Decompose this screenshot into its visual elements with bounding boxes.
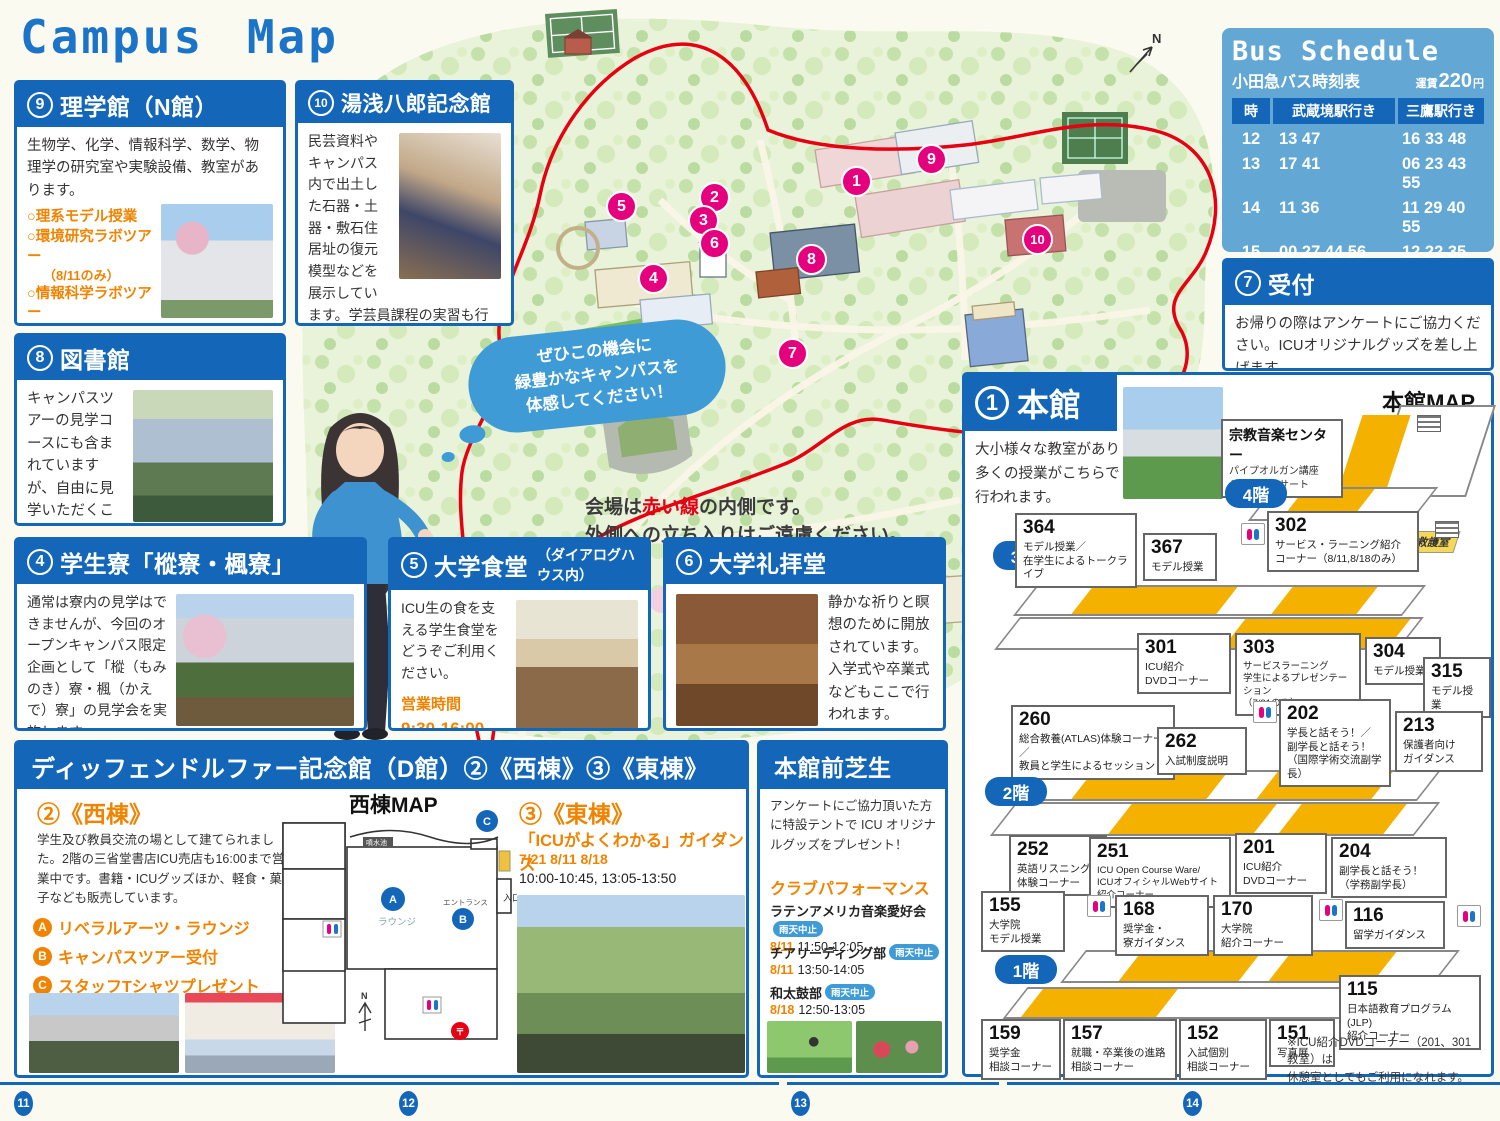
page-title: Campus Map xyxy=(20,10,339,64)
west-item-a: A リベラルアーツ・ラウンジ xyxy=(33,915,260,939)
map-marker-10: 10 xyxy=(1022,224,1053,255)
science-description: 生物学、化学、情報科学、数学、物理学の研究室や実験設備、教室があります。 xyxy=(27,138,259,199)
west-item-c-key: C xyxy=(33,976,52,995)
infobox-dormitory-body: 通常は寮内の見学はできませんが、今回のオープンキャンパス限定企画として「樅（もみ… xyxy=(17,584,364,728)
east-wing-times: 10:00-10:45, 13:05-13:50 xyxy=(519,870,676,886)
map-marker-6: 6 xyxy=(699,228,730,259)
photo-lawn-club xyxy=(856,1021,942,1073)
infobox-cafeteria-subtitle: （ダイアログハウス内） xyxy=(537,545,638,585)
room-callout-152: 152入試個別 相談コーナー xyxy=(1179,1019,1267,1080)
chapel-description: 静かな祈りと瞑想のために開放されています。入学式や卒業式などもここで行われます。 xyxy=(828,595,930,723)
map-marker-4: 4 xyxy=(638,263,669,294)
photo-science-hall xyxy=(161,204,273,318)
bus-timetable-header: 時 武蔵境駅行き 三鷹駅行き xyxy=(1232,98,1484,124)
footer-rule xyxy=(787,1082,999,1085)
photo-dormitory xyxy=(176,594,354,726)
number-ring-7: 7 xyxy=(1235,270,1261,296)
infobox-cafeteria: 5 大学食堂 （ダイアログハウス内） ICU生の食を支える学生食堂をどうぞご利用… xyxy=(388,537,651,731)
room-callout-260: 260総合教養(ATLAS)体験コーナー／ 教員と学生によるセッション xyxy=(1011,705,1175,780)
honkan-description: 大小様々な教室があり多くの授業がこちらで行われます。 xyxy=(975,439,1127,511)
photo-yuasa-museum xyxy=(399,133,501,279)
infobox-reception-header: 7 受付 xyxy=(1225,261,1491,305)
diffendorfer-section: ディッフェンドルファー記念館（D館）②《西棟》③《東棟》 ②《西棟》 学生及び教… xyxy=(14,740,749,1078)
page-number-14: 14 xyxy=(1183,1091,1202,1116)
bus-row: 1317 4106 23 43 55 xyxy=(1232,155,1484,193)
bus-fare: 運賃220円 xyxy=(1416,70,1484,93)
restroom-icon xyxy=(1241,523,1265,545)
science-item-0: ○理系モデル授業 xyxy=(27,208,161,228)
number-ring-6: 6 xyxy=(676,549,702,575)
west-wing-heading: ②《西棟》 xyxy=(37,795,152,829)
floor-pill-2f: 2階 xyxy=(985,777,1047,806)
room-callout-302: 302サービス・ラーニング紹介 コーナー（8/11,8/18のみ） xyxy=(1267,511,1419,572)
number-ring-5: 5 xyxy=(401,552,427,578)
room-callout-367: 367モデル授業 xyxy=(1143,533,1217,581)
plan-post-office-mark: 〒 xyxy=(456,1027,465,1037)
note-post: の内側です。 xyxy=(699,497,811,518)
photo-chapel xyxy=(676,594,818,726)
infobox-library-body: キャンパスツアーの見学コースにも含まれていますが、自由に見学いただくことも可能で… xyxy=(17,380,283,523)
photo-dkan-exterior xyxy=(29,993,179,1073)
room-callout-204: 204副学長と話そう！ （学務副学長） xyxy=(1331,837,1447,898)
campus-map-page: N 1 2 3 4 5 6 7 8 9 10 ぜひこの機会に 緑豊かなキャンパス… xyxy=(0,0,1500,1121)
reception-description: お帰りの際はアンケートにご協力ください。ICUオリジナルグッズを差し上げます。 xyxy=(1225,305,1491,368)
infobox-dormitory-title: 学生寮「樅寮・楓寮」 xyxy=(60,545,295,579)
cafeteria-description: ICU生の食を支える学生食堂をどうぞご利用ください。 xyxy=(401,600,499,681)
rain-cancel-badge: 雨天中止 xyxy=(773,921,823,937)
infobox-cafeteria-title: 大学食堂 xyxy=(434,548,528,582)
page-number-12: 12 xyxy=(399,1091,418,1116)
honkan-header: 1 本館 xyxy=(965,375,1117,431)
room-callout-201: 201ICU紹介 DVDコーナー xyxy=(1235,833,1327,894)
room-callout-202: 202学長と話そう！／ 副学長と話そう！ （国際学術交流副学長） xyxy=(1279,699,1391,787)
map-marker-5: 5 xyxy=(606,191,637,222)
west-wing-floorplan: 噴水池 A ラウンジ エントランス B C 入口 〒 N xyxy=(275,809,517,1045)
infobox-yuasa-body: 民芸資料やキャンパス内で出土した石器・土器・敷石住居址の復元模型などを展示してい… xyxy=(298,123,511,323)
west-item-b-label: キャンパスツアー受付 xyxy=(58,944,218,968)
infobox-chapel-title: 大学礼拝堂 xyxy=(709,545,827,579)
west-item-b-key: B xyxy=(33,947,52,966)
room-callout-213: 213保護者向け ガイダンス xyxy=(1395,711,1483,772)
honkan-title: 本館 xyxy=(1017,380,1081,426)
west-wing-items: A リベラルアーツ・ラウンジ B キャンパスツアー受付 C スタッフTシャツプレ… xyxy=(33,915,260,1002)
room-callout-364: 364モデル授業／ 在学生によるトークライブ xyxy=(1015,513,1137,588)
infobox-reception: 7 受付 お帰りの際はアンケートにご協力ください。ICUオリジナルグッズを差し上… xyxy=(1222,258,1494,371)
lawn-section: 本館前芝生 アンケートにご協力頂いた方に特設テントで ICU オリジナルグッズを… xyxy=(757,740,948,1078)
honkan-footnote: ※ICU紹介DVDコーナー（201、301教室）は 休憩室としてもご利用になれま… xyxy=(1287,1035,1472,1087)
infobox-science-title: 理学館（N館） xyxy=(60,88,218,122)
plan-a-marker: A xyxy=(389,894,397,906)
plan-entrance-label: エントランス xyxy=(443,898,488,907)
lawn-description: アンケートにご協力頂いた方に特設テントで ICU オリジナルグッズをプレゼント！ xyxy=(770,797,938,855)
number-ring-8: 8 xyxy=(27,345,53,371)
plan-c-marker: C xyxy=(483,816,491,828)
map-marker-1: 1 xyxy=(841,166,872,197)
footer-rule xyxy=(0,1082,779,1085)
note-pre: 会場は xyxy=(585,497,642,518)
room-callout-315: 315モデル授業 xyxy=(1423,657,1491,718)
plan-b-marker: B xyxy=(459,914,467,926)
event-cheerleading: チアリーディング部雨天中止 8/1113:50-14:05 xyxy=(770,943,942,977)
number-ring-9: 9 xyxy=(27,92,53,118)
plan-pond-label: 噴水池 xyxy=(366,838,387,847)
infobox-yuasa-title: 湯浅八郎記念館 xyxy=(341,88,492,118)
west-item-a-key: A xyxy=(33,918,52,937)
plan-entry-label: 入口 xyxy=(503,893,517,903)
infobox-library-header: 8 図書館 xyxy=(17,336,283,380)
rain-cancel-badge: 雨天中止 xyxy=(825,984,875,1000)
diffendorfer-title: ディッフェンドルファー記念館（D館）②《西棟》③《東棟》 xyxy=(31,749,709,784)
infobox-cafeteria-header: 5 大学食堂 （ダイアログハウス内） xyxy=(391,540,648,590)
room-callout-301: 301ICU紹介 DVDコーナー xyxy=(1137,633,1231,694)
dormitory-description: 通常は寮内の見学はできませんが、今回のオープンキャンパス限定企画として「樅（もみ… xyxy=(27,594,167,728)
bus-schedule-subtitle: 小田急バス時刻表 xyxy=(1232,68,1360,92)
science-program-list: ○理系モデル授業 ○環境研究ラボツアー （8/11のみ） ○情報科学ラボツアー … xyxy=(27,208,161,323)
science-item-1-note: （8/11のみ） xyxy=(27,267,161,285)
floor-pill-4f: 4階 xyxy=(1225,479,1287,508)
floor3-slab-upper xyxy=(1013,585,1426,616)
restroom-icon xyxy=(1253,701,1277,723)
photo-cafeteria xyxy=(516,600,638,728)
photo-honkan xyxy=(1123,387,1223,499)
bus-col-hour: 時 xyxy=(1232,98,1270,124)
page-number-13: 13 xyxy=(791,1091,810,1116)
room-callout-155: 155大学院 モデル授業 xyxy=(981,891,1065,952)
number-ring-4: 4 xyxy=(27,549,53,575)
infobox-science-header: 9 理学館（N館） xyxy=(17,83,283,127)
plan-lounge-label: ラウンジ xyxy=(378,917,416,928)
west-item-a-label: リベラルアーツ・ラウンジ xyxy=(58,915,250,939)
bus-col-mitaka: 三鷹駅行き xyxy=(1398,98,1484,124)
room-callout-170: 170大学院 紹介コーナー xyxy=(1213,895,1313,956)
rain-cancel-badge: 雨天中止 xyxy=(889,944,939,960)
club-performance-heading: クラブパフォーマンス xyxy=(770,875,930,899)
lawn-header: 本館前芝生 xyxy=(760,743,945,789)
lawn-title: 本館前芝生 xyxy=(774,749,892,783)
number-ring-10: 10 xyxy=(308,90,334,116)
bus-schedule-subrow: 小田急バス時刻表 運賃220円 xyxy=(1232,68,1484,93)
infobox-yuasa-museum: 10 湯浅八郎記念館 民芸資料やキャンパス内で出土した石器・土器・敷石住居址の復… xyxy=(295,80,514,326)
map-marker-9: 9 xyxy=(916,144,947,175)
restroom-icon xyxy=(1319,899,1343,921)
number-ring-1: 1 xyxy=(975,386,1009,420)
room-callout-159: 159奨学金 相談コーナー xyxy=(981,1019,1061,1080)
map-marker-8: 8 xyxy=(796,244,827,275)
infobox-yuasa-header: 10 湯浅八郎記念館 xyxy=(298,83,511,123)
photo-east-wing xyxy=(517,895,745,1073)
music-center-title: 宗教音楽センター xyxy=(1229,425,1335,465)
floor-pill-1f: 1階 xyxy=(995,955,1057,984)
bus-row: 1213 4716 33 48 xyxy=(1232,130,1484,149)
infobox-science-body: 生物学、化学、情報科学、数学、物理学の研究室や実験設備、教室があります。 ○理系… xyxy=(17,127,283,323)
bus-row: 1411 3611 29 40 55 xyxy=(1232,199,1484,237)
event-taiko: 和太鼓部雨天中止 8/1812:50-13:05 xyxy=(770,983,942,1017)
infobox-library: 8 図書館 キャンパスツアーの見学コースにも含まれていますが、自由に見学いただく… xyxy=(14,333,286,526)
page-number-11: 11 xyxy=(14,1091,33,1116)
honkan-panel: 1 本館 大小様々な教室があり多くの授業がこちらで行われます。 本館MAP 宗教… xyxy=(962,372,1494,1077)
plan-north-compass: N xyxy=(359,991,371,1031)
infobox-dormitory-header: 4 学生寮「樅寮・楓寮」 xyxy=(17,540,364,584)
restroom-icon xyxy=(1087,895,1111,917)
stairs-icon xyxy=(1435,521,1459,538)
note-red-line: 赤い線 xyxy=(642,497,699,518)
east-wing-heading: ③《東棟》 xyxy=(519,795,634,829)
infobox-dormitory: 4 学生寮「樅寮・楓寮」 通常は寮内の見学はできませんが、今回のオープンキャンパ… xyxy=(14,537,367,731)
photo-library xyxy=(133,390,273,522)
east-wing-dates: 7/21 8/11 8/18 xyxy=(519,851,608,867)
infobox-science-hall: 9 理学館（N館） 生物学、化学、情報科学、数学、物理学の研究室や実験設備、教室… xyxy=(14,80,286,326)
west-item-b: B キャンパスツアー受付 xyxy=(33,944,260,968)
infobox-reception-title: 受付 xyxy=(1268,266,1315,300)
library-description: キャンパスツアーの見学コースにも含まれていますが、自由に見学いただくことも可能で… xyxy=(27,391,114,523)
map-marker-7: 7 xyxy=(777,338,808,369)
photo-lawn-performance xyxy=(767,1021,852,1073)
bus-col-musashisakai: 武蔵境駅行き xyxy=(1273,98,1395,124)
infobox-chapel-body: 静かな祈りと瞑想のために開放されています。入学式や卒業式などもここで行われます。 xyxy=(666,584,943,728)
science-item-2: ○情報科学ラボツアー xyxy=(27,285,161,323)
compass-label: N xyxy=(1152,31,1161,46)
stairs-icon xyxy=(1417,415,1441,432)
science-item-1: ○環境研究ラボツアー xyxy=(27,228,161,267)
floor2-slab-lower xyxy=(990,802,1441,836)
room-callout-168: 168奨学金・ 寮ガイダンス xyxy=(1115,895,1209,956)
compass-north: N xyxy=(1126,30,1170,81)
infobox-cafeteria-body: ICU生の食を支える学生食堂をどうぞご利用ください。 営業時間 9:30-16:… xyxy=(391,590,648,728)
restroom-icon xyxy=(1457,905,1481,927)
room-callout-157: 157就職・卒業後の進路 相談コーナー xyxy=(1063,1019,1177,1080)
bus-schedule-panel: Bus Schedule 小田急バス時刻表 運賃220円 時 武蔵境駅行き 三鷹… xyxy=(1222,28,1494,252)
room-callout-262: 262入試制度説明 xyxy=(1157,727,1247,775)
infobox-chapel: 6 大学礼拝堂 静かな祈りと瞑想のために開放されています。入学式や卒業式などもこ… xyxy=(663,537,946,731)
svg-text:N: N xyxy=(361,991,368,1001)
diffendorfer-header: ディッフェンドルファー記念館（D館）②《西棟》③《東棟》 xyxy=(17,743,746,789)
west-wing-description: 学生及び教員交流の場として建てられました。2階の三省堂書店ICU売店も16:00… xyxy=(37,831,287,909)
infobox-chapel-header: 6 大学礼拝堂 xyxy=(666,540,943,584)
room-callout-116: 116留学ガイダンス xyxy=(1345,901,1445,949)
music-center-line1: パイプオルガン講座 xyxy=(1229,465,1335,479)
infobox-library-title: 図書館 xyxy=(60,341,131,375)
bus-schedule-title: Bus Schedule xyxy=(1232,36,1484,67)
